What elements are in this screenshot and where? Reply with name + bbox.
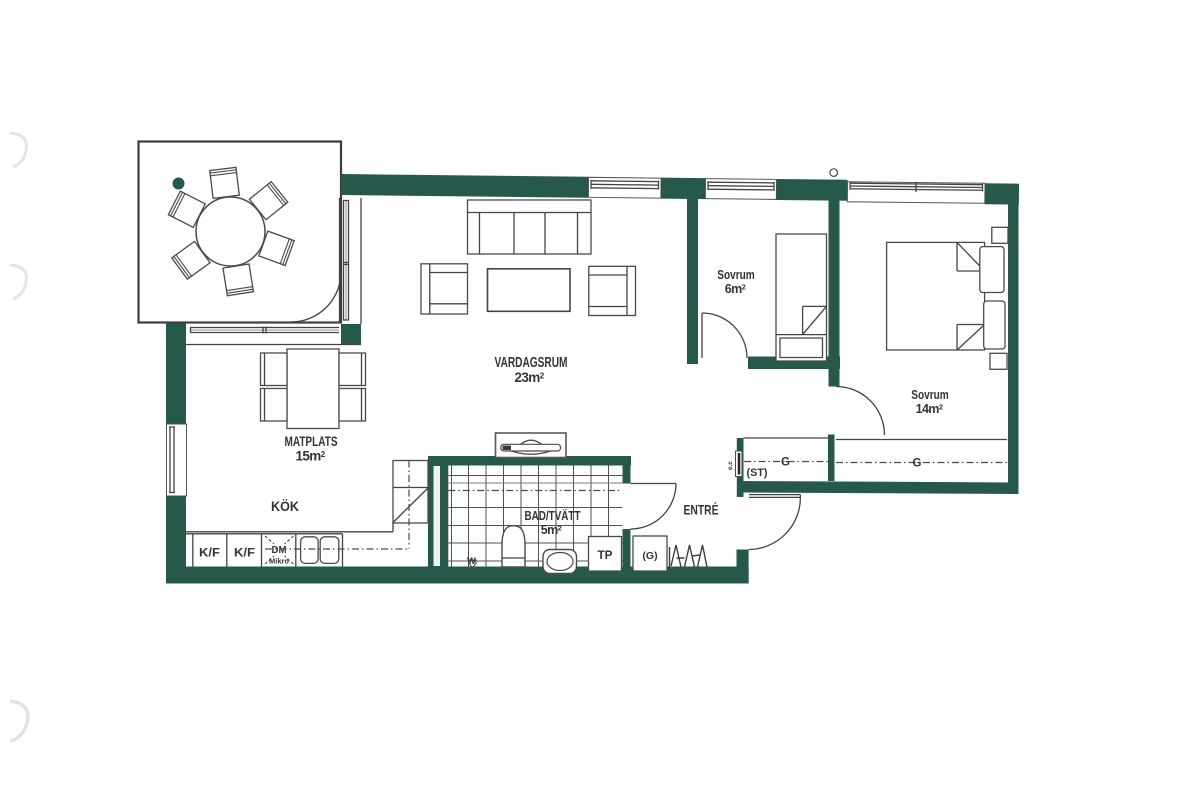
svg-text:(ST): (ST)	[747, 467, 768, 479]
svg-text:ENTRÉ: ENTRÉ	[684, 503, 719, 518]
svg-text:KÖK: KÖK	[271, 498, 299, 514]
svg-text:Sovrum: Sovrum	[717, 267, 755, 282]
svg-text:K/F: K/F	[199, 546, 220, 560]
svg-text:Mikro: Mikro	[269, 557, 289, 566]
svg-text:TP: TP	[598, 550, 613, 562]
svg-text:G: G	[913, 458, 922, 470]
svg-text:e.c: e.c	[727, 461, 734, 470]
svg-text:(G): (G)	[642, 550, 657, 562]
svg-text:14m2: 14m2	[916, 402, 943, 416]
svg-text:G: G	[781, 457, 790, 469]
svg-text:VARDAGSRUM: VARDAGSRUM	[495, 355, 568, 371]
svg-text:MATPLATS: MATPLATS	[285, 433, 338, 449]
svg-text:DM: DM	[272, 544, 287, 556]
svg-text:Sovrum: Sovrum	[911, 387, 949, 402]
svg-text:BAD/TVÄTT: BAD/TVÄTT	[525, 508, 581, 523]
svg-text:K/F: K/F	[234, 546, 255, 560]
